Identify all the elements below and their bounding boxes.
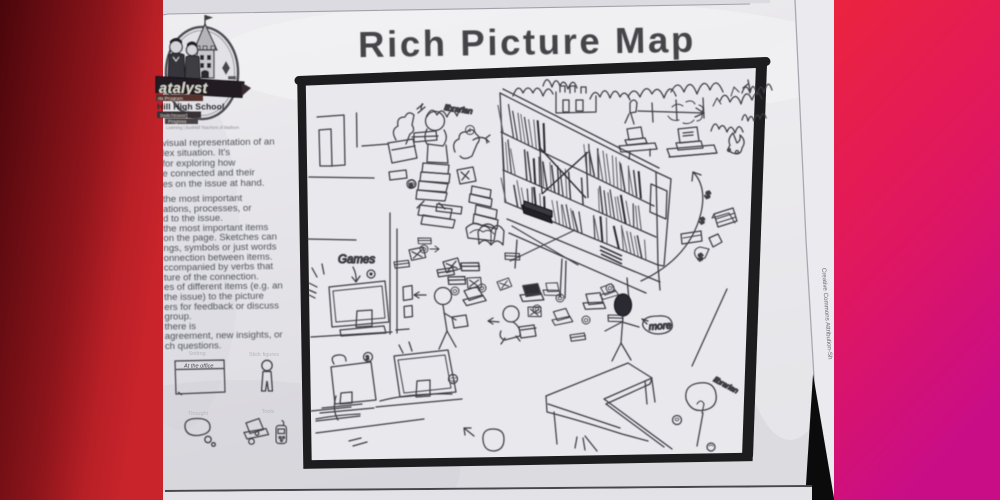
svg-text:Thought: Thought bbox=[188, 411, 209, 417]
svg-text:3: 3 bbox=[366, 355, 370, 362]
svg-text:Games: Games bbox=[338, 254, 375, 266]
svg-text:Tools: Tools bbox=[262, 409, 275, 415]
svg-text:more: more bbox=[648, 320, 672, 333]
svg-text:Setting: Setting bbox=[188, 351, 205, 357]
svg-text:Progress: Progress bbox=[168, 119, 187, 124]
svg-text:Learning | Bushkill Teachers: Learning | Bushkill Teachers of Mathem bbox=[166, 125, 240, 130]
svg-text:Stick figures: Stick figures bbox=[249, 352, 279, 358]
svg-text:es on the issue at hand.: es on the issue at hand. bbox=[163, 177, 265, 189]
svg-text:Rich Picture Map: Rich Picture Map bbox=[358, 19, 696, 65]
svg-text:Hill High School: Hill High School bbox=[157, 102, 224, 112]
svg-text:At the office: At the office bbox=[183, 364, 214, 370]
